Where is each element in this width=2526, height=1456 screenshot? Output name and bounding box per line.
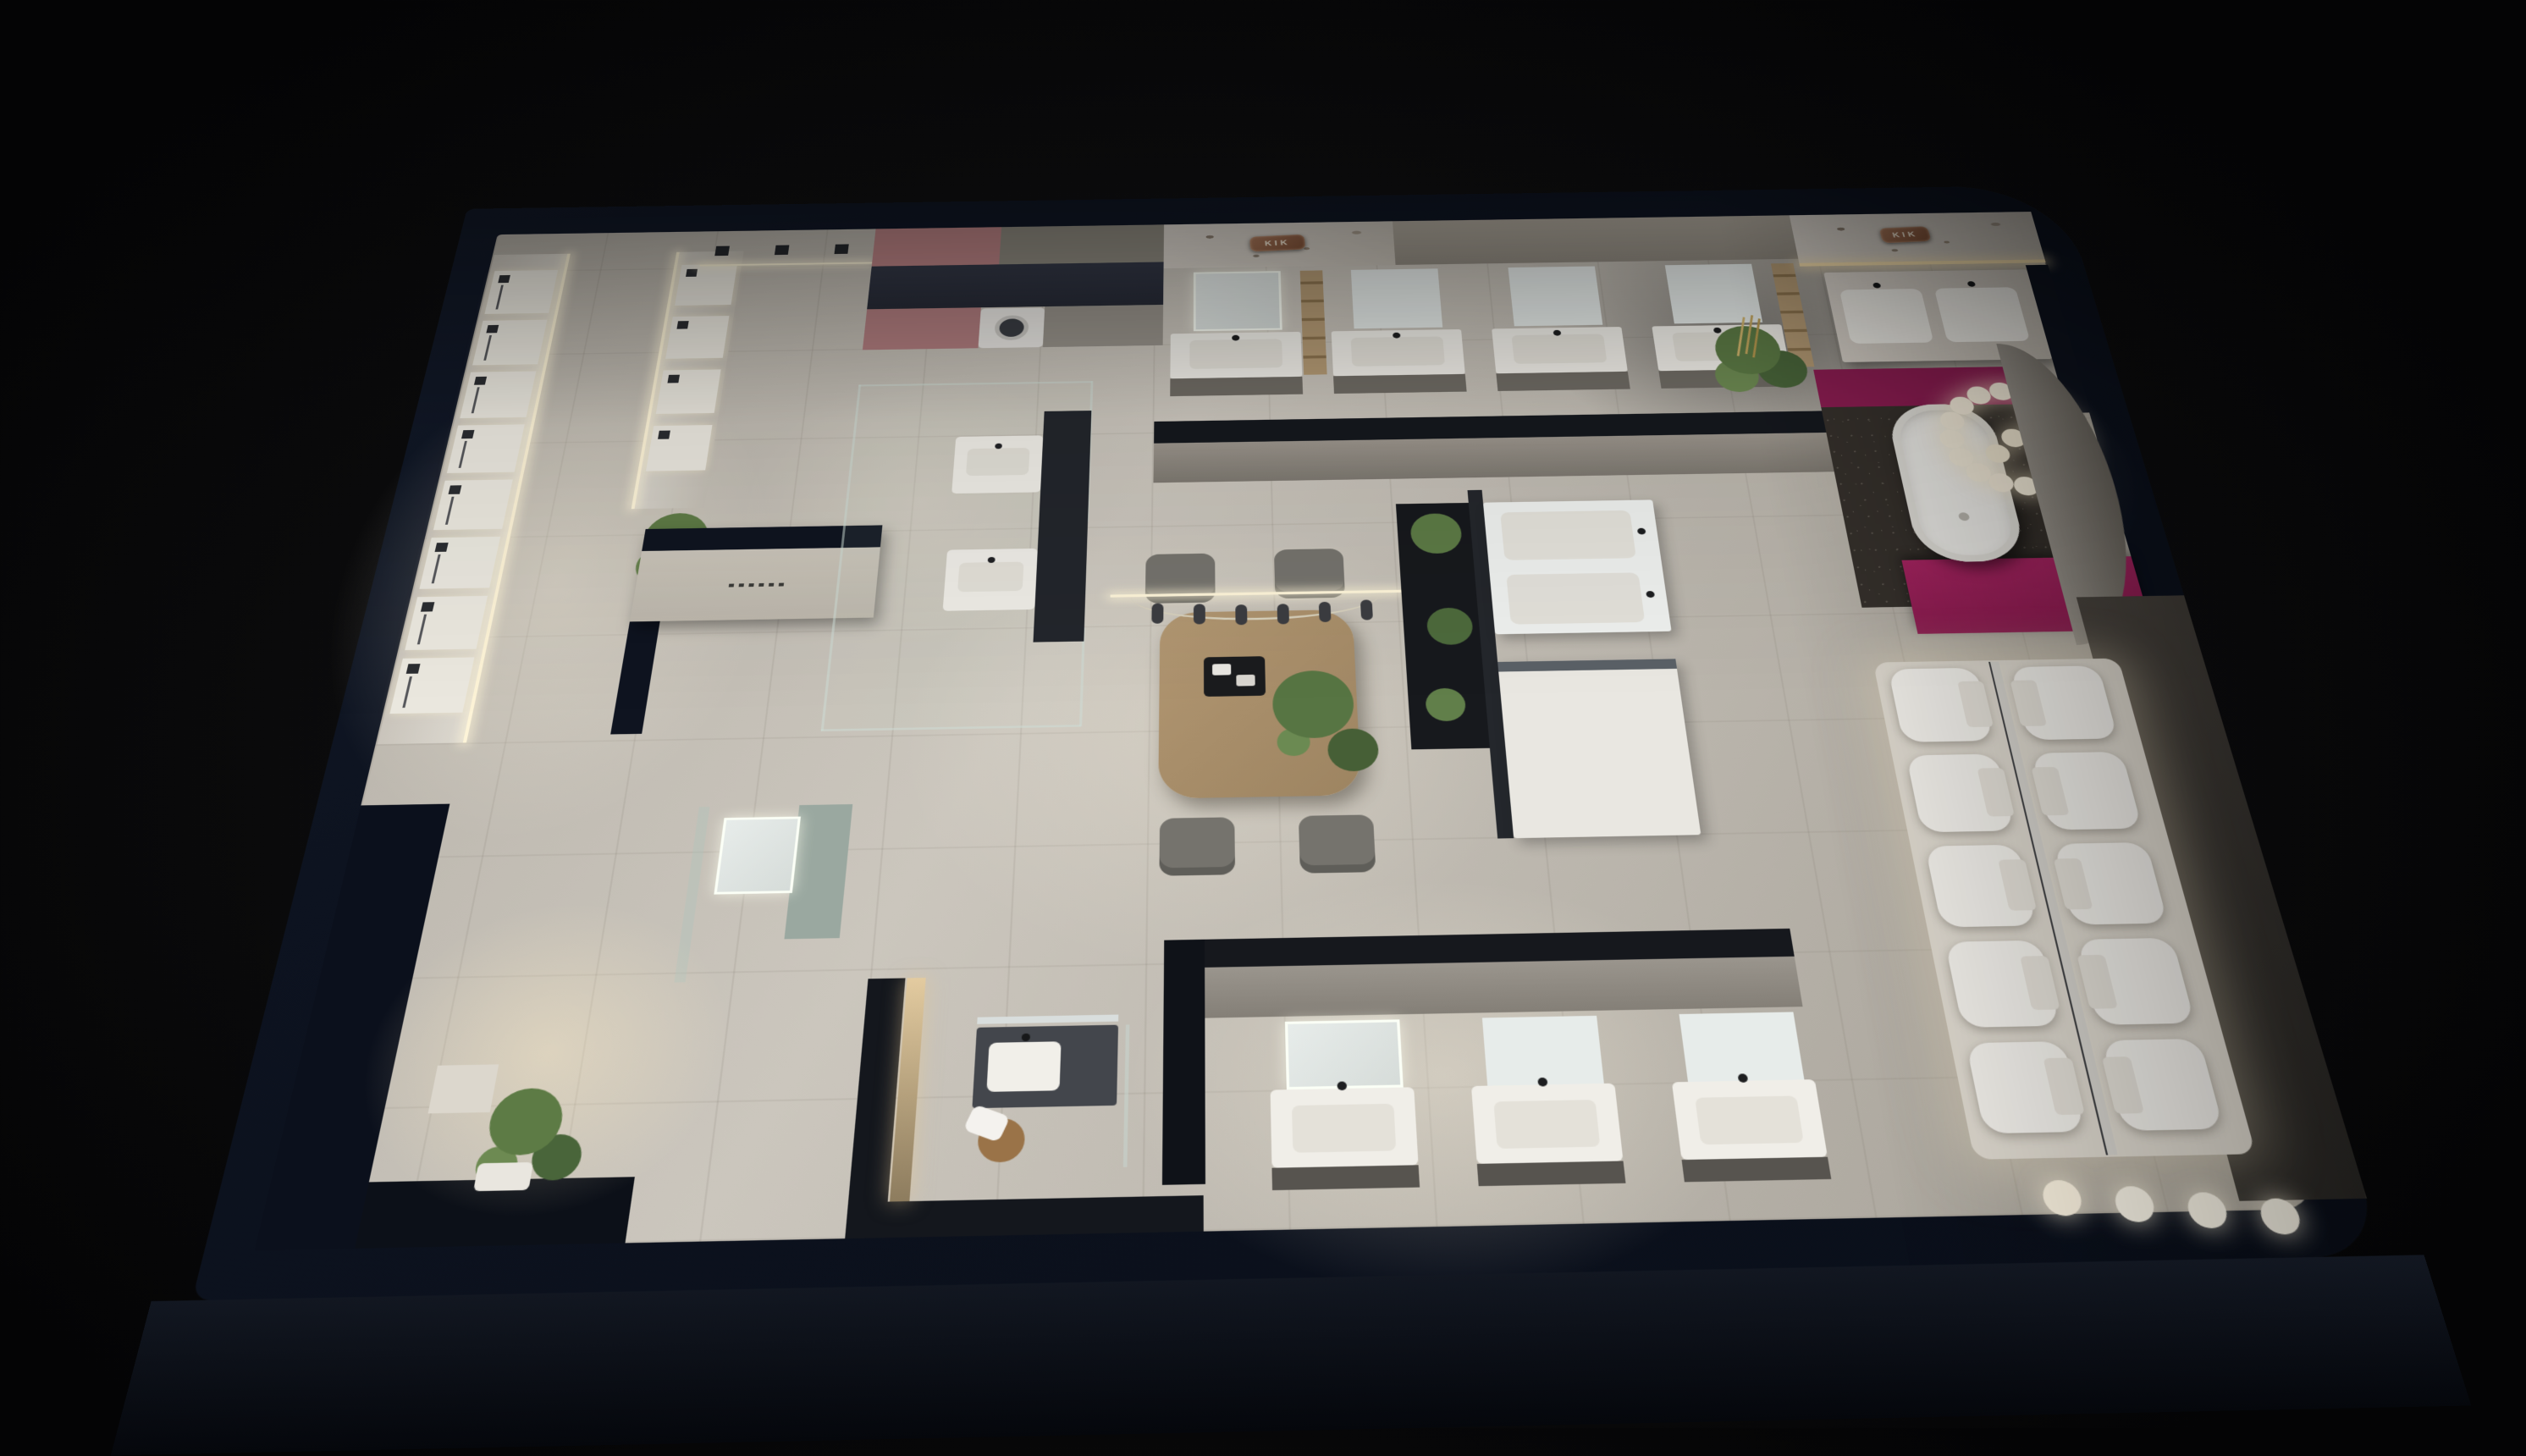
island-cabinet-front [1497, 659, 1677, 671]
laundry-cabinet-pink [863, 307, 981, 350]
island-basin [1506, 572, 1645, 624]
lounge-chair [1299, 814, 1376, 873]
brand-plaque-center: KIK [1249, 234, 1305, 252]
partition-vanity-cabinets [1271, 1165, 1420, 1190]
mockup-dark-wall [845, 1195, 1204, 1238]
hanging-shower-heads [1151, 604, 1163, 624]
entrance-lit-mirror [714, 817, 801, 895]
serving-tray [1204, 656, 1266, 697]
partition-end-column [1162, 940, 1205, 1185]
island-faucets [1637, 528, 1646, 535]
brand-plaque-right-text: KIK [1891, 230, 1919, 240]
mockup-basin [986, 1041, 1061, 1092]
laundry-wall-pink [872, 227, 1001, 266]
vanity-cabinets-top-row [1170, 377, 1303, 396]
lounge-chair [1159, 817, 1235, 876]
shower-display-panels-inner [675, 264, 737, 306]
brand-plaque-center-text: KIK [1265, 238, 1291, 247]
laundry-cabinet-grey [1043, 305, 1163, 347]
partition-vanity-mirrors [1285, 1019, 1404, 1089]
vanity-basins-top-row [1189, 339, 1282, 369]
building-front-face [111, 1255, 2472, 1455]
washing-machine-door [994, 315, 1029, 340]
vanity-faucets [1872, 283, 1881, 289]
rain-shower-heads-inner [686, 269, 698, 277]
bathtub-drain [1958, 512, 1971, 521]
display-pedestal [428, 1064, 499, 1113]
vanity-sink [1934, 287, 2030, 342]
partition-basin-bowls [1292, 1104, 1396, 1153]
mockup-faucet [1022, 1034, 1030, 1041]
ceiling-shower-heads [714, 246, 730, 256]
laundry-wall-grey [999, 224, 1164, 264]
laundry-countertop [867, 262, 1163, 309]
vanity-mirrors-top-row [1194, 271, 1282, 331]
open-shelf-tower [1300, 270, 1327, 374]
vanity-island-upper [1483, 499, 1672, 634]
glass-room-basins [966, 448, 1030, 476]
mockup-vanity-counter [972, 1025, 1118, 1109]
showroom-floorplate: KIK KIK [192, 185, 2385, 1300]
vanity-sink [1839, 289, 1934, 344]
far-wall [1393, 215, 1798, 265]
island-basin [1500, 510, 1636, 560]
brand-plaque-right: KIK [1878, 226, 1931, 243]
vanity-island-lower [1497, 659, 1701, 838]
plant-pot [473, 1162, 533, 1191]
desk-logo-marks [729, 582, 787, 587]
rain-shower-heads-left [498, 275, 510, 283]
tray-items [1212, 664, 1231, 676]
washing-machine [978, 307, 1045, 348]
